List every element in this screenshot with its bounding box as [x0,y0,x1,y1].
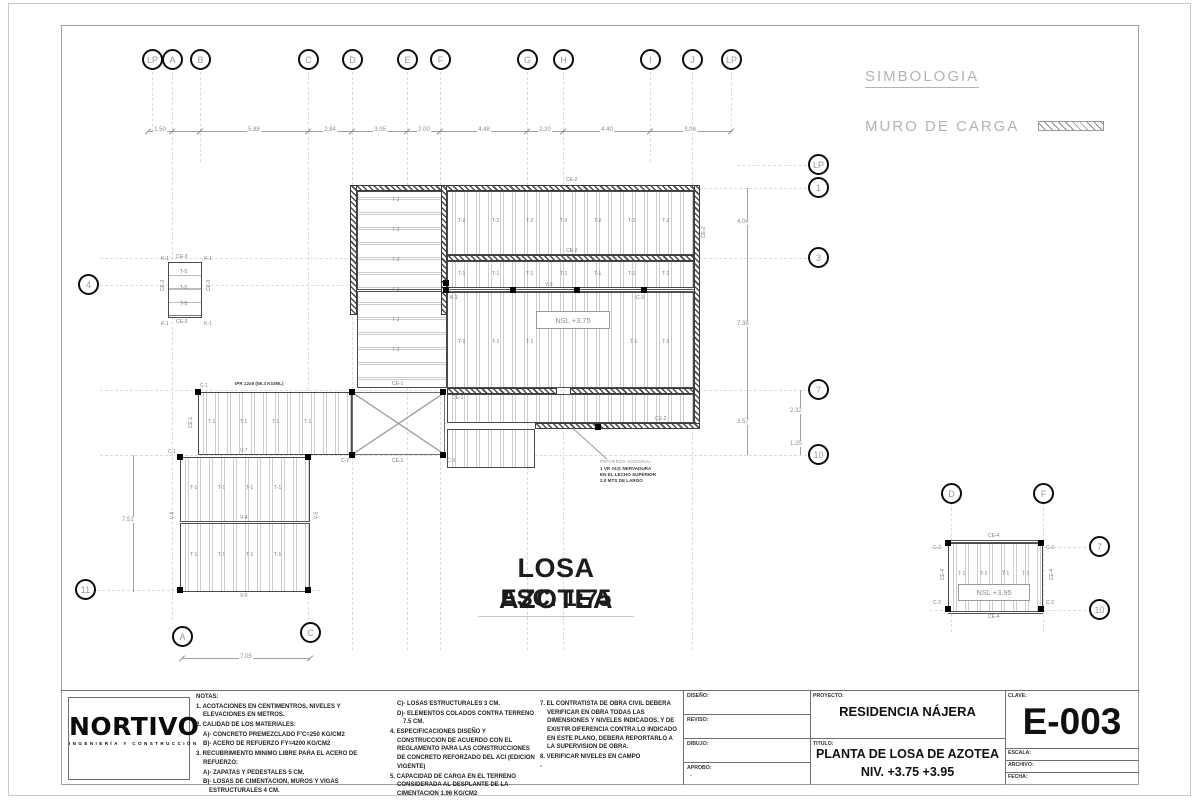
grid-bubble: I [640,49,661,70]
dim-value: 1.25 [789,441,803,447]
dim-value: 2.84 [323,127,337,133]
joist-label: T-1 [628,272,635,277]
dim-value: 3.57 [736,419,750,425]
level-tag-main: NSL +3.75 [536,311,610,329]
grid-bubble: D [342,49,363,70]
sheet-title-line2: NIV. +3.75 +3.95 [810,765,1005,779]
column-marker [305,454,311,460]
grid-line [152,72,153,132]
joist-label: T-2 [392,228,399,233]
titleblock-divider [683,738,810,739]
column-marker [510,287,516,293]
notes-column-3: 7. EL CONTRATISTA DE OBRA CIVIL DEBERA V… [540,700,678,773]
field-fecha: FECHA: [1008,774,1028,780]
grid-bubble: 10 [1089,599,1110,620]
grid-bubble: D [941,483,962,504]
field-clave: CLAVE: [1008,693,1027,699]
column-marker [945,606,951,612]
grid-bubble: C [298,49,319,70]
joist-label: T-2 [662,219,669,224]
notes-heading: NOTAS: [196,693,384,702]
joist-label: T-1 [594,272,601,277]
dim-value: 2.32 [789,408,803,414]
field-escala: ESCALA: [1008,750,1031,756]
field-dibujo: DIBUJO: [687,741,708,747]
grid-bubble-label: B [197,55,203,65]
note-item: - [540,763,678,772]
element-label: CE-3 [176,255,187,260]
grid-bubble-label: I [649,55,652,65]
grid-bubble: 7 [1089,536,1110,557]
element-label: CE-3 [176,320,187,325]
grid-bubble: 7 [808,379,829,400]
joist-label: T-2 [392,288,399,293]
load-wall [447,388,557,394]
grid-bubble: LP [142,49,163,70]
element-label: C-1 [200,384,208,389]
joist-label: T-1 [190,486,197,491]
element-label: CE-1 [392,459,403,464]
element-label: V-7 [240,449,248,454]
joist-label: T-1 [662,272,669,277]
element-label: K-1 [204,322,212,327]
joist-label: T-1 [492,272,499,277]
grid-line [352,72,353,650]
grid-bubble-label: D [948,489,955,499]
joist-label: T-1 [304,420,311,425]
column-marker [349,389,355,395]
column-marker [440,389,446,395]
joist-label: T-5 [180,302,187,307]
element-label: V-8 [170,512,175,520]
project-name: RESIDENCIA NÁJERA [810,704,1005,719]
element-label: CE-2 [566,249,577,254]
reinforcement-note: 1 VR #4@ NERVADURA [600,466,651,472]
note-item: 3. RECUBRIMIENTO MINIMO LIBRE PARA EL AC… [196,750,384,767]
column-marker [305,587,311,593]
element-label: C-2 [1046,546,1054,551]
joist-label: T-1 [274,553,281,558]
element-label: V-4 [240,516,248,521]
dim-value: 5.88 [247,127,261,133]
logo-box: NORTIVO INGENIERÍA Y CONSTRUCCIÓN [68,697,190,780]
titleblock-divider [683,762,810,763]
joist-label: T-1 [1022,572,1029,577]
grid-bubble: C [300,622,321,643]
reinforcement-note: 2.0 MTS DE LARGO [600,478,643,484]
grid-bubble: 10 [808,444,829,465]
field-archivo: ARCHIVO: [1008,762,1034,768]
titleblock-divider [1005,748,1139,749]
column-marker [1038,540,1044,546]
joist-label: T-1 [246,553,253,558]
element-label: CE-1 [452,396,463,401]
element-label: V-5 [314,512,319,520]
joist-label: T-1 [218,486,225,491]
note-item: 7. EL CONTRATISTA DE OBRA CIVIL DEBERA V… [540,700,678,752]
joist-label: T-2 [560,219,567,224]
dim-value: 7.38 [736,321,750,327]
joist-label: T-1 [526,340,533,345]
grid-bubble-label: 7 [1097,542,1102,552]
dim-value: 3.08 [683,127,697,133]
slab-joists-vertical [447,191,694,255]
slab-joists-vertical [447,429,535,468]
joist-label: T-1 [240,420,247,425]
joist-label: T-1 [246,486,253,491]
level-tag-detail: NSL +3.95 [958,584,1030,601]
column-marker [440,452,446,458]
grid-bubble-label: C [307,628,314,638]
dim-value: 3.05 [373,127,387,133]
field-diseno: DISEÑO: [687,693,709,699]
joist-label: T-2 [392,258,399,263]
element-label: C-3 [636,296,644,301]
dim-value: 2.20 [538,127,552,133]
element-label: K-1 [161,257,169,262]
load-wall-swatch [1038,121,1104,131]
grid-bubble-label: 1 [816,183,821,193]
joist-label: T-5 [180,270,187,275]
note-item: B)- ACERO DE REFUERZO FY=4200 KG/CM2 [196,740,384,749]
dim-value: 1.50 [153,127,167,133]
detail-slab-joists [948,543,1043,612]
note-item: 5. CAPACIDAD DE CARGA EN EL TERRENO CONS… [390,773,535,799]
load-wall [350,185,700,191]
element-label: C-3 [447,459,455,464]
grid-bubble-label: 10 [813,450,823,460]
note-item: D)- ELEMENTOS COLADOS CONTRA TERRENO 7.5… [390,710,535,727]
element-label: CE-1 [392,382,403,387]
column-marker [443,280,449,286]
dim-value: 7.51 [121,517,135,523]
joist-label: T-1 [980,572,987,577]
beam [948,540,1043,543]
joist-label: T-1 [662,340,669,345]
column-marker [945,540,951,546]
titleblock-divider [1005,772,1139,773]
dim-value: 4.04 [736,219,750,225]
joist-label: T-1 [208,420,215,425]
load-wall [447,255,694,261]
dimension-line [133,455,134,592]
element-label: CE-2 [566,178,577,183]
element-label: V-6 [240,594,248,599]
grid-bubble-label: LP [147,55,158,65]
column-marker [574,287,580,293]
grid-bubble: A [162,49,183,70]
plan-scale: ESC. 1:75 [478,585,634,613]
element-label: CE-3 [161,280,166,291]
element-label: IPR 12x6 (59.3 KG/ML) [235,382,284,387]
joist-label: T-2 [594,219,601,224]
grid-bubble: 1 [808,177,829,198]
column-marker [177,587,183,593]
column-marker [195,389,201,395]
titleblock-divider [810,738,1005,739]
titleblock-divider [1005,760,1139,761]
field-reviso: REVISO: [687,717,708,723]
stair-void [352,392,445,455]
joist-label: T-1 [458,340,465,345]
grid-bubble-label: J [690,55,695,65]
load-wall [350,185,357,315]
grid-bubble: LP [808,154,829,175]
joist-label: T-2 [458,219,465,224]
grid-bubble-label: C [305,55,312,65]
column-marker [595,424,601,430]
element-label: C-2 [933,546,941,551]
grid-line [200,72,201,162]
field-aprobo: APROBO: [687,765,712,771]
reinforcement-note: REFUERZO ADICIONAL [600,459,651,465]
grid-bubble-label: D [349,55,356,65]
element-label: CE-1 [189,417,194,428]
joist-label: T-2 [492,219,499,224]
dim-value: 4.40 [600,127,614,133]
element-label: K-1 [161,322,169,327]
grid-bubble: 4 [78,274,99,295]
joist-label: T-1 [526,272,533,277]
joist-label: T-2 [392,198,399,203]
element-label: CE-4 [988,615,999,620]
element-label: CE-2 [655,417,666,422]
joist-label: T-2 [628,219,635,224]
symbology-item-label: MURO DE CARGA [865,118,1019,135]
element-label: CE-4 [941,569,946,580]
note-item: A)- CONCRETO PREMEZCLADO F'C=250 KG/CM2 [196,731,384,740]
note-item: 2. CALIDAD DE LOS MATERIALES: [196,721,384,730]
load-wall [535,423,700,429]
load-wall [441,185,447,315]
dim-value: 4.48 [477,127,491,133]
titleblock-divider [61,690,1139,691]
slab-joists-vertical [447,261,694,288]
grid-bubble-label: LP [813,160,824,170]
grid-bubble: 11 [75,579,96,600]
joist-label: T-1 [190,553,197,558]
logo: NORTIVO [69,712,189,741]
sheet-number: E-003 [1005,701,1139,743]
joist-label: T-2 [392,318,399,323]
joist-label: T-1 [560,272,567,277]
grid-bubble-label: F [438,55,444,65]
grid-bubble-label: 3 [816,253,821,263]
field-titulo: TITULO: [813,741,833,747]
grid-bubble-label: 10 [1094,605,1104,615]
beam [180,521,310,524]
joist-label: T-2 [392,348,399,353]
joist-label: T-1 [492,340,499,345]
grid-line [650,72,651,162]
element-label: C-2 [933,601,941,606]
element-label: CE-2 [702,227,707,238]
grid-bubble-label: F [1041,489,1047,499]
note-item: B)- LOSAS DE CIMENTACION, MUROS Y VIGAS … [196,778,384,795]
grid-bubble: E [397,49,418,70]
drawing-sheet: LP A B C D E F G H I J LP LP 1 3 7 10 4 … [0,0,1200,800]
grid-bubble-label: H [560,55,567,65]
grid-bubble: F [430,49,451,70]
grid-bubble: A [172,626,193,647]
grid-bubble-label: 4 [86,280,91,290]
note-item: 4. ESPECIFICACIONES DISEÑO Y CONSTRUCCIO… [390,728,535,771]
notes-column-2: C)- LOSAS ESTRUCTURALES 3 CM. D)- ELEMEN… [390,700,535,800]
element-label: CE-4 [988,534,999,539]
joist-label: T-1 [958,572,965,577]
element-label: V-3 [545,283,553,288]
joist-label: T-1 [458,272,465,277]
joist-label: T-1 [274,486,281,491]
grid-bubble-label: A [169,55,175,65]
element-label: C-2 [341,459,349,464]
element-label: C-2 [1046,601,1054,606]
grid-bubble: F [1033,483,1054,504]
load-wall [694,185,700,428]
note-item: 1. ACOTACIONES EN CENTIMENTROS, NIVELES … [196,703,384,720]
grid-line [731,72,732,132]
dim-value: 7.05 [239,654,253,660]
slab-joists-vertical [180,457,310,592]
column-marker [177,454,183,460]
joist-label: T-2 [526,219,533,224]
element-label: K-1 [450,296,458,301]
grid-line [737,165,807,166]
grid-bubble-label: 7 [816,385,821,395]
column-marker [443,287,449,293]
grid-bubble-label: G [524,55,531,65]
grid-bubble: H [553,49,574,70]
joist-label: T-1 [630,340,637,345]
slab-joists-vertical [447,292,694,388]
field-proyecto: PROYECTO: [813,693,844,699]
symbology-title: SIMBOLOGIA [865,68,979,88]
grid-bubble: J [682,49,703,70]
note-item: C)- LOSAS ESTRUCTURALES 3 CM. [390,700,535,709]
grid-bubble-label: 11 [81,585,90,595]
load-wall [570,388,694,394]
column-marker [641,287,647,293]
grid-bubble-label: E [404,55,410,65]
joist-label: T-1 [1002,572,1009,577]
column-marker [1038,606,1044,612]
joist-label: T-1 [272,420,279,425]
sheet-title-line1: PLANTA DE LOSA DE AZOTEA [810,747,1005,761]
grid-bubble: 3 [808,247,829,268]
element-label: CE-4 [1050,569,1055,580]
titleblock-divider [1005,690,1006,785]
dim-value: 2.00 [417,127,431,133]
element-label: CE-3 [207,280,212,291]
field-aprobo-value: - [690,773,692,779]
joist-label: T-1 [218,553,225,558]
grid-bubble: LP [721,49,742,70]
reinforcement-note: EN EL LECHO SUPERIOR [600,472,656,478]
grid-line [172,72,173,620]
element-label: K-1 [204,257,212,262]
column-marker [349,452,355,458]
titleblock-divider [683,714,810,715]
grid-bubble-label: LP [726,55,737,65]
grid-bubble: G [517,49,538,70]
joist-label: T-5 [180,286,187,291]
notes-column-1: NOTAS: 1. ACOTACIONES EN CENTIMENTROS, N… [196,693,384,797]
grid-bubble: B [190,49,211,70]
note-item: 8. VERIFICAR NIVELES EN CAMPO [540,753,678,762]
logo-tagline: INGENIERÍA Y CONSTRUCCIÓN [69,741,189,746]
element-label: C-1 [168,450,176,455]
grid-bubble-label: A [179,632,185,642]
note-item: A)- ZAPATAS Y PEDESTALES 5 CM. [196,769,384,778]
